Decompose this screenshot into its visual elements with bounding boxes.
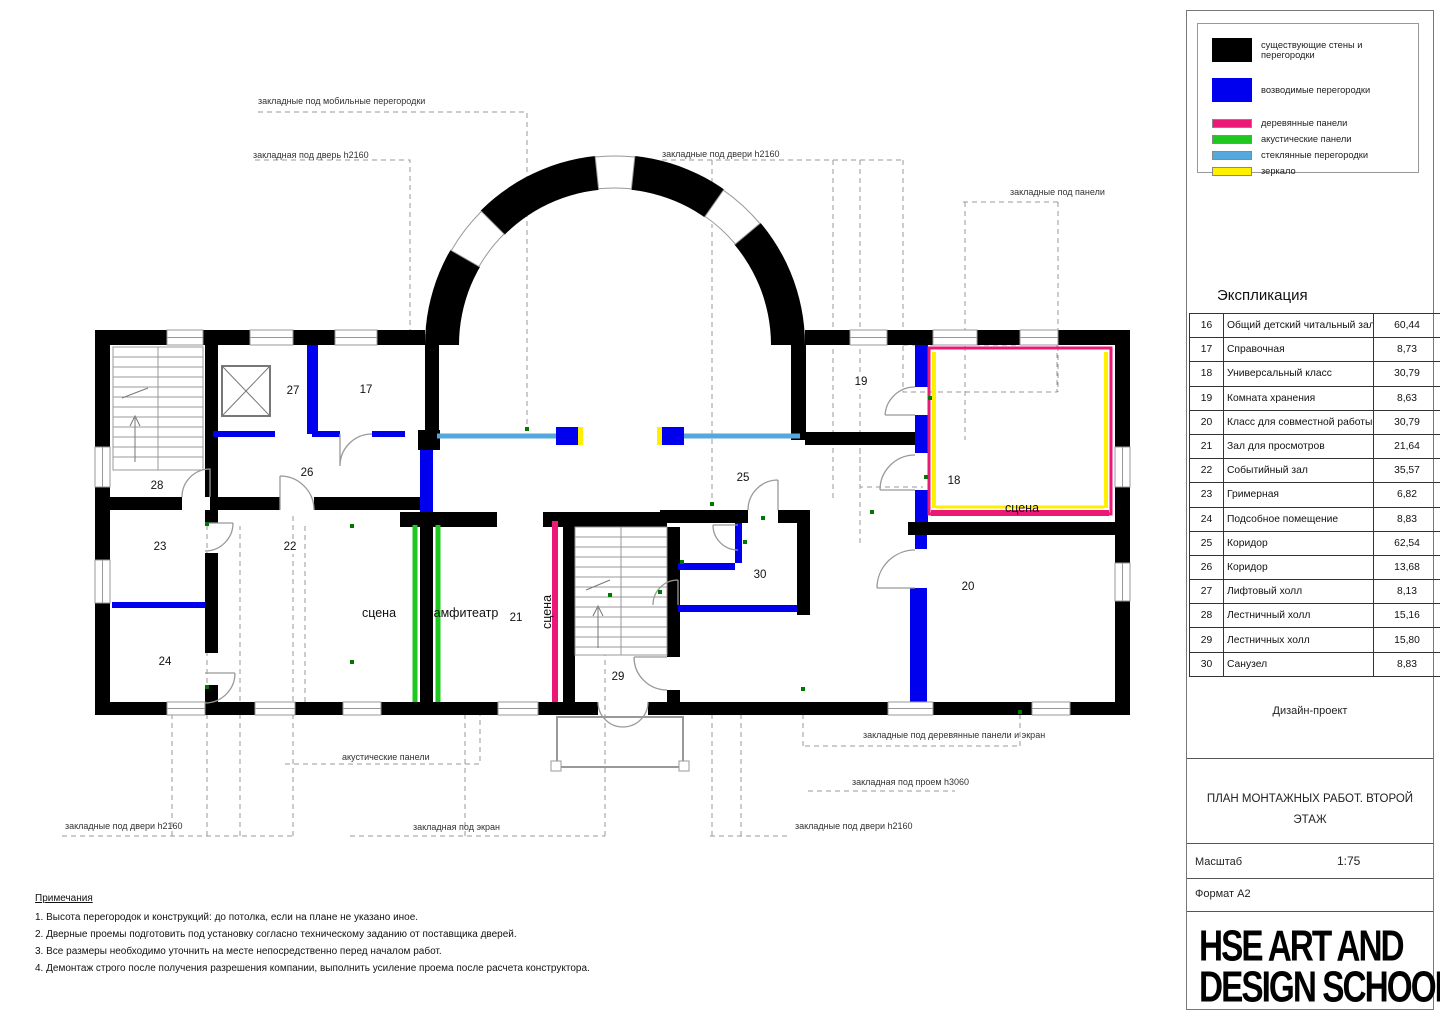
room-area-cell: 8,83	[1374, 507, 1440, 531]
room-number-cell: 24	[1190, 507, 1224, 531]
note-item: 1. Высота перегородок и конструкций: до …	[35, 912, 590, 923]
room-area-cell: 8,83	[1374, 652, 1440, 676]
title-block-panel: существующие стены и перегородкивозводим…	[1186, 10, 1434, 1010]
table-row: 24Подсобное помещение8,83	[1190, 507, 1440, 531]
room-name-cell: Универсальный класс	[1224, 362, 1374, 386]
legend-item: существующие стены и перегородки	[1212, 38, 1418, 62]
room-name-cell: Подсобное помещение	[1224, 507, 1374, 531]
table-row: 20Класс для совместной работы30,79	[1190, 410, 1440, 434]
legend-label: возводимые перегородки	[1261, 85, 1370, 95]
room-number-cell: 19	[1190, 386, 1224, 410]
arch-wall	[418, 155, 806, 450]
table-row: 19Комната хранения8,63	[1190, 386, 1440, 410]
notes-title: Примечания	[35, 893, 590, 904]
room-number-cell: 25	[1190, 531, 1224, 555]
sheet: { "legend": { "items": [ {"label":"сущес…	[0, 0, 1440, 1018]
notes-items: 1. Высота перегородок и конструкций: до …	[35, 912, 590, 974]
legend-label: стеклянные перегородки	[1261, 150, 1368, 160]
room-name-cell: Коридор	[1224, 531, 1374, 555]
room-name-cell: Зал для просмотров	[1224, 434, 1374, 458]
legend-swatch-thin	[1212, 135, 1252, 144]
scale-value: 1:75	[1337, 854, 1360, 868]
legend-label: акустические панели	[1261, 134, 1351, 144]
logo-cell: HSE ART AND DESIGN SCHOOLВ	[1187, 911, 1433, 1007]
room-name-cell: Комната хранения	[1224, 386, 1374, 410]
note-item: 4. Демонтаж строго после получения разре…	[35, 963, 590, 974]
legend-swatch-big	[1212, 38, 1252, 62]
room-area-cell: 15,16	[1374, 604, 1440, 628]
legend-swatch-big	[1212, 78, 1252, 102]
format-cell: Формат А2	[1187, 878, 1433, 911]
room-area-cell: 30,79	[1374, 410, 1440, 434]
note-item: 2. Дверные проемы подготовить под устано…	[35, 929, 590, 940]
legend-item: деревянные панели	[1212, 118, 1418, 128]
legend-item: зеркало	[1212, 166, 1418, 176]
room-number-cell: 28	[1190, 604, 1224, 628]
table-row: 25Коридор62,54	[1190, 531, 1440, 555]
table-row: 16Общий детский читальный зал60,44	[1190, 314, 1440, 338]
room-area-cell: 35,57	[1374, 459, 1440, 483]
room-number-cell: 18	[1190, 362, 1224, 386]
room-name-cell: Класс для совместной работы	[1224, 410, 1374, 434]
room-number-cell: 20	[1190, 410, 1224, 434]
room-name-cell: Гримерная	[1224, 483, 1374, 507]
table-row: 17Справочная8,73	[1190, 338, 1440, 362]
table-row: 30Санузел8,83	[1190, 652, 1440, 676]
porch	[551, 717, 689, 771]
legend-label: зеркало	[1261, 166, 1296, 176]
room-area-cell: 8,13	[1374, 580, 1440, 604]
room-number-cell: 23	[1190, 483, 1224, 507]
sheet-title-cell: ПЛАН МОНТАЖНЫХ РАБОТ. ВТОРОЙ ЭТАЖ	[1187, 758, 1433, 843]
room-number-cell: 22	[1190, 459, 1224, 483]
room-number-cell: 26	[1190, 555, 1224, 579]
room-name-cell: Справочная	[1224, 338, 1374, 362]
scale-cell: Масштаб 1:75	[1187, 843, 1433, 878]
note-item: 3. Все размеры необходимо уточнить на ме…	[35, 946, 590, 957]
room-name-cell: Лестничный холл	[1224, 604, 1374, 628]
project-type-cell: Дизайн-проект	[1187, 677, 1433, 758]
room-name-cell: Лифтовый холл	[1224, 580, 1374, 604]
table-row: 28Лестничный холл15,16	[1190, 604, 1440, 628]
legend-swatch-thin	[1212, 167, 1252, 176]
floor-plan-drawing	[0, 0, 1186, 1018]
logo-line-2: DESIGN SCHOOLВ	[1199, 967, 1428, 1008]
room-area-cell: 21,64	[1374, 434, 1440, 458]
explication-table: 16Общий детский читальный зал60,4417Спра…	[1189, 313, 1440, 677]
room-area-cell: 8,73	[1374, 338, 1440, 362]
format-label: Формат А2	[1195, 888, 1251, 900]
leader-lines	[62, 112, 1108, 836]
project-type: Дизайн-проект	[1187, 705, 1433, 717]
room-number-cell: 29	[1190, 628, 1224, 652]
legend: существующие стены и перегородкивозводим…	[1197, 23, 1419, 173]
room-area-cell: 15,80	[1374, 628, 1440, 652]
table-row: 18Универсальный класс30,79	[1190, 362, 1440, 386]
room-area-cell: 30,79	[1374, 362, 1440, 386]
legend-label: существующие стены и перегородки	[1261, 40, 1418, 60]
legend-item: стеклянные перегородки	[1212, 150, 1418, 160]
logo-line-1: HSE ART AND	[1199, 926, 1428, 967]
legend-swatch-thin	[1212, 119, 1252, 128]
room-number-cell: 16	[1190, 314, 1224, 338]
stair-28	[113, 347, 203, 470]
room-number-cell: 21	[1190, 434, 1224, 458]
stair-29	[575, 527, 667, 655]
room-area-cell: 60,44	[1374, 314, 1440, 338]
room-area-cell: 13,68	[1374, 555, 1440, 579]
table-row: 23Гримерная6,82	[1190, 483, 1440, 507]
table-row: 22Событийный зал35,57	[1190, 459, 1440, 483]
room-area-cell: 62,54	[1374, 531, 1440, 555]
room-area-cell: 8,63	[1374, 386, 1440, 410]
scale-label: Масштаб	[1195, 856, 1242, 868]
mirror-strips	[578, 427, 662, 445]
explication-title: Экспликация	[1217, 287, 1308, 304]
room-name-cell: Санузел	[1224, 652, 1374, 676]
room-area-cell: 6,82	[1374, 483, 1440, 507]
table-row: 29Лестничных холл15,80	[1190, 628, 1440, 652]
table-row: 26Коридор13,68	[1190, 555, 1440, 579]
room-name-cell: Событийный зал	[1224, 459, 1374, 483]
elevator	[222, 366, 270, 416]
table-row: 27Лифтовый холл8,13	[1190, 580, 1440, 604]
hse-logo: HSE ART AND DESIGN SCHOOLВ	[1199, 926, 1428, 1009]
sheet-title: ПЛАН МОНТАЖНЫХ РАБОТ. ВТОРОЙ ЭТАЖ	[1187, 789, 1433, 831]
table-row: 21Зал для просмотров21,64	[1190, 434, 1440, 458]
room-name-cell: Общий детский читальный зал	[1224, 314, 1374, 338]
room-number-cell: 17	[1190, 338, 1224, 362]
legend-item: акустические панели	[1212, 134, 1418, 144]
legend-label: деревянные панели	[1261, 118, 1347, 128]
legend-item: возводимые перегородки	[1212, 78, 1418, 102]
room-number-cell: 30	[1190, 652, 1224, 676]
notes-block: Примечания 1. Высота перегородок и конст…	[35, 893, 590, 980]
room-number-cell: 27	[1190, 580, 1224, 604]
legend-swatch-thin	[1212, 151, 1252, 160]
room-name-cell: Коридор	[1224, 555, 1374, 579]
room-name-cell: Лестничных холл	[1224, 628, 1374, 652]
